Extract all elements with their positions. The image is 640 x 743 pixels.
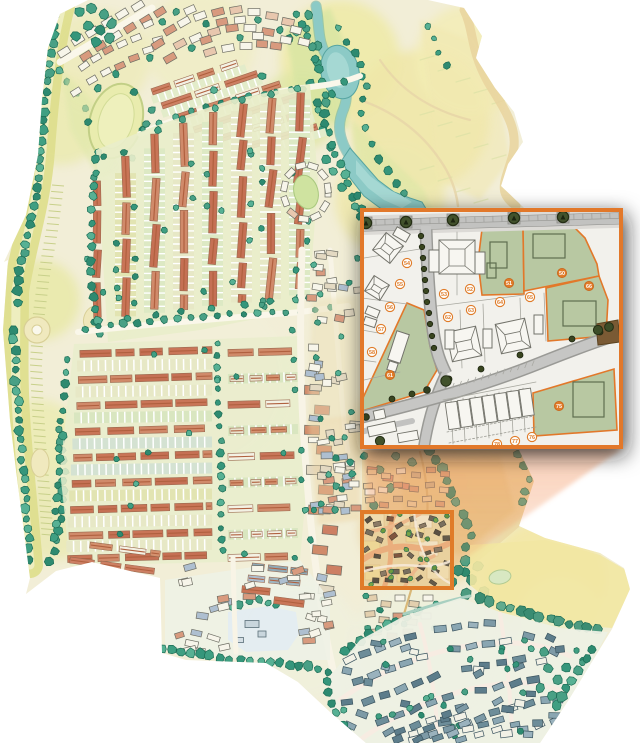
- svg-text:54: 54: [404, 261, 410, 267]
- svg-text:55: 55: [397, 282, 403, 288]
- svg-text:57: 57: [378, 327, 384, 333]
- svg-text:61: 61: [387, 373, 393, 379]
- svg-text:51: 51: [506, 281, 512, 287]
- svg-text:62: 62: [445, 315, 451, 321]
- svg-text:53: 53: [441, 292, 447, 298]
- svg-text:56: 56: [387, 305, 393, 311]
- svg-text:77: 77: [512, 439, 518, 445]
- svg-text:66: 66: [586, 284, 592, 290]
- svg-text:52: 52: [467, 287, 473, 293]
- svg-text:75: 75: [556, 404, 562, 410]
- svg-text:76: 76: [529, 435, 535, 441]
- svg-text:64: 64: [497, 300, 503, 306]
- svg-text:58: 58: [369, 350, 375, 356]
- svg-text:50: 50: [559, 271, 565, 277]
- svg-text:65: 65: [527, 295, 533, 301]
- svg-text:63: 63: [468, 308, 474, 314]
